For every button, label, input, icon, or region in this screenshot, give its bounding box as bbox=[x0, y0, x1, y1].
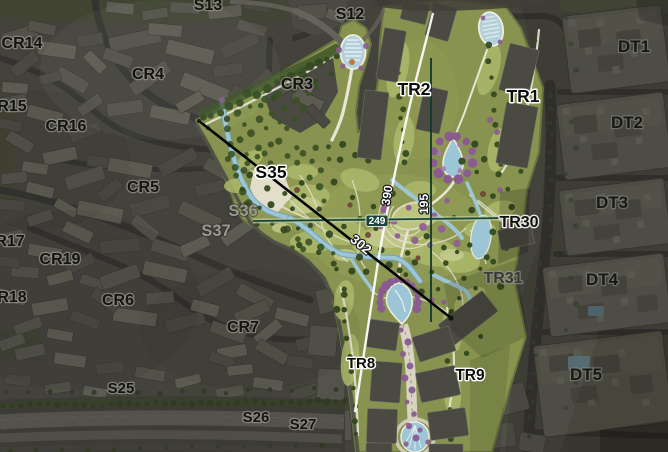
svg-text:S26: S26 bbox=[243, 409, 270, 426]
svg-text:S13: S13 bbox=[194, 0, 223, 14]
svg-text:R18: R18 bbox=[0, 289, 27, 306]
svg-text:S12: S12 bbox=[336, 6, 365, 23]
svg-text:TR30: TR30 bbox=[499, 214, 538, 231]
svg-text:DT4: DT4 bbox=[586, 270, 619, 289]
svg-text:195: 195 bbox=[417, 194, 431, 214]
svg-text:CR16: CR16 bbox=[46, 118, 87, 135]
svg-text:TR2: TR2 bbox=[397, 79, 430, 99]
svg-text:CR4: CR4 bbox=[132, 66, 164, 83]
svg-text:TR9: TR9 bbox=[455, 367, 485, 384]
svg-text:TR31: TR31 bbox=[483, 270, 522, 287]
svg-text:CR7: CR7 bbox=[227, 319, 259, 336]
svg-text:S35: S35 bbox=[255, 162, 286, 182]
svg-text:S36: S36 bbox=[228, 202, 257, 220]
svg-text:S37: S37 bbox=[201, 222, 230, 240]
svg-text:R15: R15 bbox=[0, 98, 27, 115]
svg-text:CR3: CR3 bbox=[281, 76, 313, 93]
svg-text:TR1: TR1 bbox=[506, 86, 539, 106]
svg-text:CR6: CR6 bbox=[102, 292, 134, 309]
svg-text:S25: S25 bbox=[108, 380, 135, 397]
svg-text:DT3: DT3 bbox=[596, 193, 628, 212]
svg-text:DT2: DT2 bbox=[611, 113, 643, 132]
svg-text:R17: R17 bbox=[0, 233, 25, 250]
svg-text:249: 249 bbox=[369, 216, 386, 227]
svg-text:DT5: DT5 bbox=[570, 365, 602, 384]
svg-text:CR19: CR19 bbox=[40, 251, 81, 268]
svg-text:CR5: CR5 bbox=[127, 179, 159, 196]
svg-text:S27: S27 bbox=[290, 416, 317, 433]
svg-text:DT1: DT1 bbox=[618, 37, 650, 56]
svg-text:CR14: CR14 bbox=[2, 35, 43, 52]
svg-text:TR8: TR8 bbox=[347, 355, 375, 372]
